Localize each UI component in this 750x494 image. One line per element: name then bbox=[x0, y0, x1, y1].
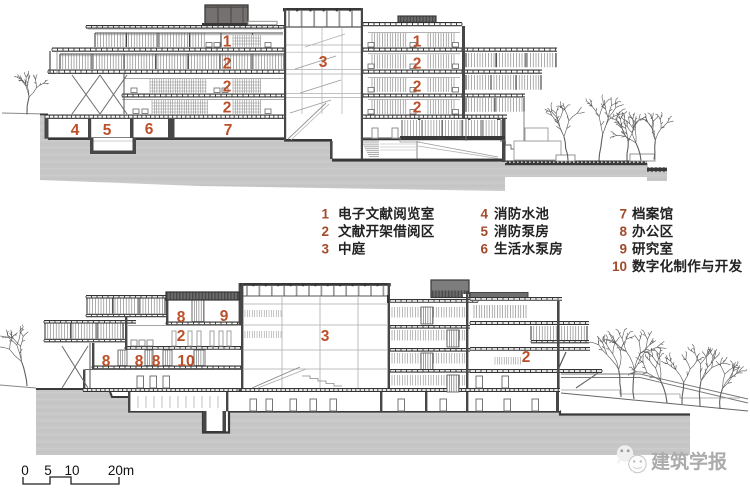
svg-text:6: 6 bbox=[145, 121, 154, 138]
svg-text:1: 1 bbox=[413, 34, 422, 51]
svg-text:1: 1 bbox=[223, 34, 232, 51]
svg-text:建筑学报: 建筑学报 bbox=[651, 450, 727, 473]
svg-text:8: 8 bbox=[152, 353, 161, 370]
svg-text:档案馆: 档案馆 bbox=[632, 206, 673, 222]
svg-text:7: 7 bbox=[619, 207, 627, 222]
svg-text:2: 2 bbox=[223, 56, 232, 73]
svg-text:8: 8 bbox=[102, 353, 111, 370]
svg-text:5: 5 bbox=[44, 463, 52, 478]
svg-text:电子文献阅览室: 电子文献阅览室 bbox=[338, 206, 435, 222]
svg-text:1: 1 bbox=[321, 207, 329, 222]
svg-text:2: 2 bbox=[522, 349, 531, 366]
svg-text:2: 2 bbox=[223, 100, 232, 117]
svg-text:生活水泵房: 生活水泵房 bbox=[494, 241, 563, 257]
svg-text:2: 2 bbox=[413, 56, 422, 73]
svg-text:10: 10 bbox=[612, 259, 627, 274]
svg-text:8: 8 bbox=[177, 309, 186, 326]
svg-text:文献开架借阅区: 文献开架借阅区 bbox=[338, 223, 435, 239]
svg-text:7: 7 bbox=[224, 122, 233, 139]
svg-text:5: 5 bbox=[103, 122, 112, 139]
svg-text:6: 6 bbox=[480, 242, 488, 257]
svg-text:2: 2 bbox=[321, 224, 329, 239]
svg-text:4: 4 bbox=[71, 122, 80, 139]
svg-text:办公区: 办公区 bbox=[632, 223, 674, 239]
svg-text:2: 2 bbox=[177, 328, 186, 345]
svg-text:3: 3 bbox=[319, 54, 328, 71]
svg-text:3: 3 bbox=[321, 328, 330, 345]
svg-text:9: 9 bbox=[220, 308, 229, 325]
svg-text:数字化制作与开发: 数字化制作与开发 bbox=[632, 258, 743, 274]
svg-text:2: 2 bbox=[223, 79, 232, 96]
svg-text:2: 2 bbox=[413, 79, 422, 96]
svg-text:中庭: 中庭 bbox=[338, 241, 366, 257]
svg-text:2: 2 bbox=[413, 100, 422, 117]
svg-text:9: 9 bbox=[619, 242, 627, 257]
svg-text:消防泵房: 消防泵房 bbox=[494, 223, 549, 239]
svg-text:5: 5 bbox=[480, 224, 488, 239]
svg-text:0: 0 bbox=[21, 463, 29, 478]
svg-text:8: 8 bbox=[135, 353, 144, 370]
svg-text:研究室: 研究室 bbox=[632, 241, 674, 257]
svg-text:消防水池: 消防水池 bbox=[494, 206, 549, 222]
svg-text:3: 3 bbox=[321, 242, 329, 257]
svg-text:20m: 20m bbox=[108, 463, 134, 478]
svg-text:8: 8 bbox=[619, 224, 627, 239]
svg-text:4: 4 bbox=[480, 207, 488, 222]
svg-text:10: 10 bbox=[64, 463, 79, 478]
svg-text:10: 10 bbox=[177, 353, 194, 370]
